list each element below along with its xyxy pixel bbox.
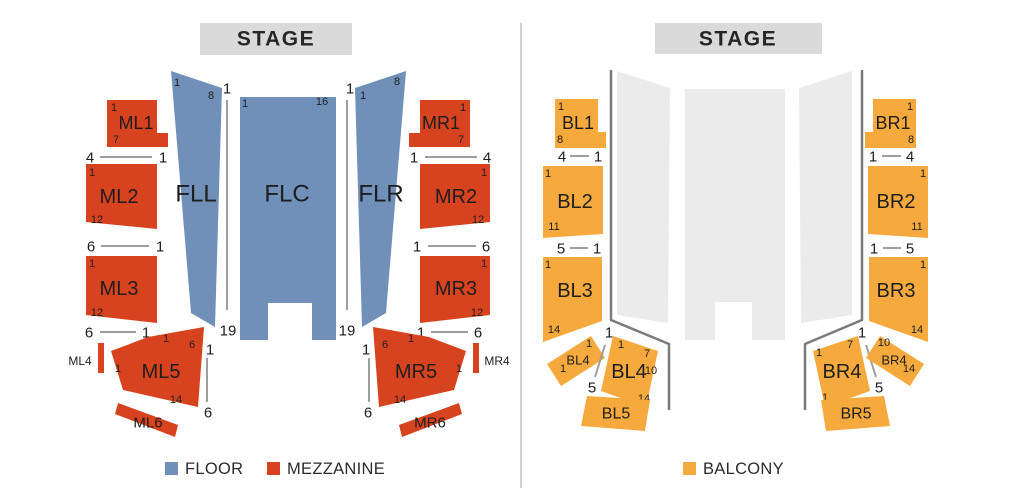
mr5-aisle-bottom: 6: [364, 405, 372, 422]
mr5-aisle-top: 1: [362, 342, 370, 359]
bl1-seat-right: 1: [594, 149, 602, 166]
br4-small-side-num: 14: [903, 363, 915, 375]
ml5-aisle-top: 1: [206, 342, 214, 359]
section-br1-label: BR1: [875, 113, 910, 133]
seating-charts-svg: STAGE FLL 1 8 FLC 1 16 FLR 1 8 1 19 1 19…: [0, 0, 1024, 501]
section-bl4-small-label: BL4: [566, 353, 589, 368]
bl4-num-7: 7: [644, 348, 650, 360]
section-mr6-label: MR6: [414, 415, 446, 432]
bl4-small-side-num: 1: [560, 363, 566, 375]
ml5-top-seat: 6: [189, 339, 195, 351]
br1-seat-left: 1: [869, 149, 877, 166]
floor-mezzanine-legend: FLOOR MEZZANINE: [165, 460, 385, 478]
mezzanine-legend-label: MEZZANINE: [287, 460, 385, 478]
ml2-seat-left: 6: [87, 239, 95, 256]
br4-small-top-num: 10: [878, 337, 890, 349]
bl1-row-end: 8: [557, 134, 563, 146]
ml1-row-start: 1: [111, 102, 117, 114]
ghost-flr: [799, 71, 852, 323]
bl2-row-end: 11: [548, 221, 559, 233]
br2-row-start: 1: [920, 168, 926, 180]
mr5-bottom-row: 14: [394, 394, 406, 406]
section-flc[interactable]: [240, 97, 336, 340]
bl2-row-start: 1: [545, 168, 551, 180]
br3-row-start: 1: [920, 259, 926, 271]
bl2-seat-right: 1: [593, 241, 601, 258]
bl4-num-1: 1: [618, 339, 624, 351]
section-mr5-label: MR5: [395, 361, 437, 383]
ml1-seat-right: 1: [159, 150, 167, 167]
section-ml4-label: ML4: [68, 354, 92, 368]
ml2-seat-right: 1: [156, 239, 164, 256]
ml2-row-end: 12: [91, 214, 103, 226]
ml3-row-start: 1: [89, 258, 95, 270]
bl4-aisle-top: 1: [605, 325, 613, 342]
section-bl5-label: BL5: [602, 406, 631, 423]
bl4-aisle-bottom: 5: [588, 380, 596, 397]
section-ml6-label: ML6: [133, 415, 162, 432]
ml3-seat-left: 6: [85, 325, 93, 342]
floor-aisle-right-bottom: 19: [339, 323, 356, 340]
bl3-row-start: 1: [545, 259, 551, 271]
mr1-seat-right: 4: [483, 150, 491, 167]
bl4-num-10: 10: [645, 365, 657, 377]
section-mr4-label: MR4: [484, 354, 510, 368]
ml5-side-row: 1: [115, 363, 121, 375]
section-br5-label: BR5: [840, 406, 871, 423]
flc-seat-top-right: 16: [316, 96, 328, 108]
ml5-aisle-bottom: 6: [204, 405, 212, 422]
mr1-row-end: 7: [458, 134, 464, 146]
bl3-row-end: 14: [548, 324, 560, 336]
br4-aisle-top: 1: [858, 325, 866, 342]
floor-aisle-right-top: 1: [346, 81, 354, 98]
seating-chart-page: STAGE FLL 1 8 FLC 1 16 FLR 1 8 1 19 1 19…: [0, 0, 1024, 501]
stage-right-label: STAGE: [699, 28, 777, 51]
bl2-seat-left: 5: [557, 241, 565, 258]
floor-mezzanine-chart: STAGE FLL 1 8 FLC 1 16 FLR 1 8 1 19 1 19…: [68, 23, 510, 478]
floor-legend-label: FLOOR: [185, 460, 243, 478]
section-bl1-label: BL1: [562, 113, 594, 133]
section-mr1-label: MR1: [422, 113, 460, 133]
balcony-legend-swatch: [683, 462, 696, 475]
section-mr2-label: MR2: [435, 186, 477, 208]
section-ml3-label: ML3: [100, 278, 139, 300]
stage-left-label: STAGE: [237, 28, 315, 51]
br4-num-7: 7: [847, 339, 853, 351]
section-ml1-label: ML1: [118, 113, 153, 133]
mr2-seat-left: 1: [413, 239, 421, 256]
mr3-seat-right: 6: [474, 325, 482, 342]
section-bl3-label: BL3: [557, 280, 593, 302]
br2-row-end: 11: [911, 221, 922, 233]
mr3-row-start: 1: [481, 258, 487, 270]
br1-row-start: 1: [907, 101, 913, 113]
balcony-legend: BALCONY: [683, 460, 784, 478]
section-ml4[interactable]: [98, 343, 104, 373]
section-br3-label: BR3: [877, 280, 916, 302]
floor-legend-swatch: [165, 462, 178, 475]
section-ml2-label: ML2: [100, 186, 139, 208]
section-bl2-label: BL2: [557, 191, 593, 213]
br4-aisle-bottom: 5: [875, 380, 883, 397]
section-br2-label: BR2: [877, 191, 916, 213]
flr-seat-top-left: 1: [360, 90, 366, 102]
mr3-row-end: 12: [471, 307, 483, 319]
mr5-top-row: 1: [408, 333, 414, 345]
ml1-seat-left: 4: [86, 150, 94, 167]
floor-aisle-left-top: 1: [223, 81, 231, 98]
mr2-row-end: 12: [472, 214, 484, 226]
balcony-chart: STAGE BL1 1 8 4 1 BL2 1 11 5 1 BL3: [543, 23, 928, 478]
mezzanine-legend-swatch: [267, 462, 280, 475]
ml3-row-end: 12: [91, 307, 103, 319]
ml5-top-row: 1: [163, 333, 169, 345]
flc-seat-top-left: 1: [242, 98, 248, 110]
mr5-top-seat: 6: [382, 339, 388, 351]
fll-seat-top-left: 1: [174, 77, 180, 89]
section-flc-label: FLC: [264, 181, 309, 208]
br2-seat-left: 1: [870, 241, 878, 258]
mr1-seat-left: 1: [410, 150, 418, 167]
ghost-flc: [685, 89, 785, 340]
bl4-small-top-num: 1: [586, 338, 592, 350]
floor-aisle-left-bottom: 19: [220, 323, 237, 340]
ghost-fll: [617, 71, 670, 323]
bl1-row-start: 1: [558, 101, 564, 113]
br1-row-end: 8: [908, 134, 914, 146]
br1-seat-right: 4: [906, 149, 914, 166]
mr2-seat-right: 6: [482, 239, 490, 256]
br4-num-1a: 1: [816, 347, 822, 359]
balcony-legend-label: BALCONY: [703, 460, 784, 478]
fll-seat-top-right: 8: [208, 90, 214, 102]
mr1-row-start: 1: [460, 102, 466, 114]
ml5-bottom-row: 14: [170, 394, 182, 406]
section-flr-label: FLR: [358, 181, 403, 208]
mr5-side-row: 1: [456, 363, 462, 375]
section-ml5-label: ML5: [142, 361, 181, 383]
ml1-row-end: 7: [113, 134, 119, 146]
section-bl4-label: BL4: [611, 361, 647, 383]
br3-row-end: 14: [911, 324, 923, 336]
section-mr3-label: MR3: [435, 278, 477, 300]
floor-sections: FLL 1 8 FLC 1 16 FLR 1 8 1 19 1 19: [171, 71, 406, 340]
bl1-seat-left: 4: [558, 149, 566, 166]
section-mr4[interactable]: [473, 343, 479, 373]
section-fll-label: FLL: [175, 181, 216, 208]
br2-seat-right: 5: [906, 241, 914, 258]
ml2-row-start: 1: [89, 167, 95, 179]
flr-seat-top-right: 8: [394, 76, 400, 88]
mr2-row-start: 1: [481, 167, 487, 179]
section-br4-label: BR4: [823, 361, 862, 383]
